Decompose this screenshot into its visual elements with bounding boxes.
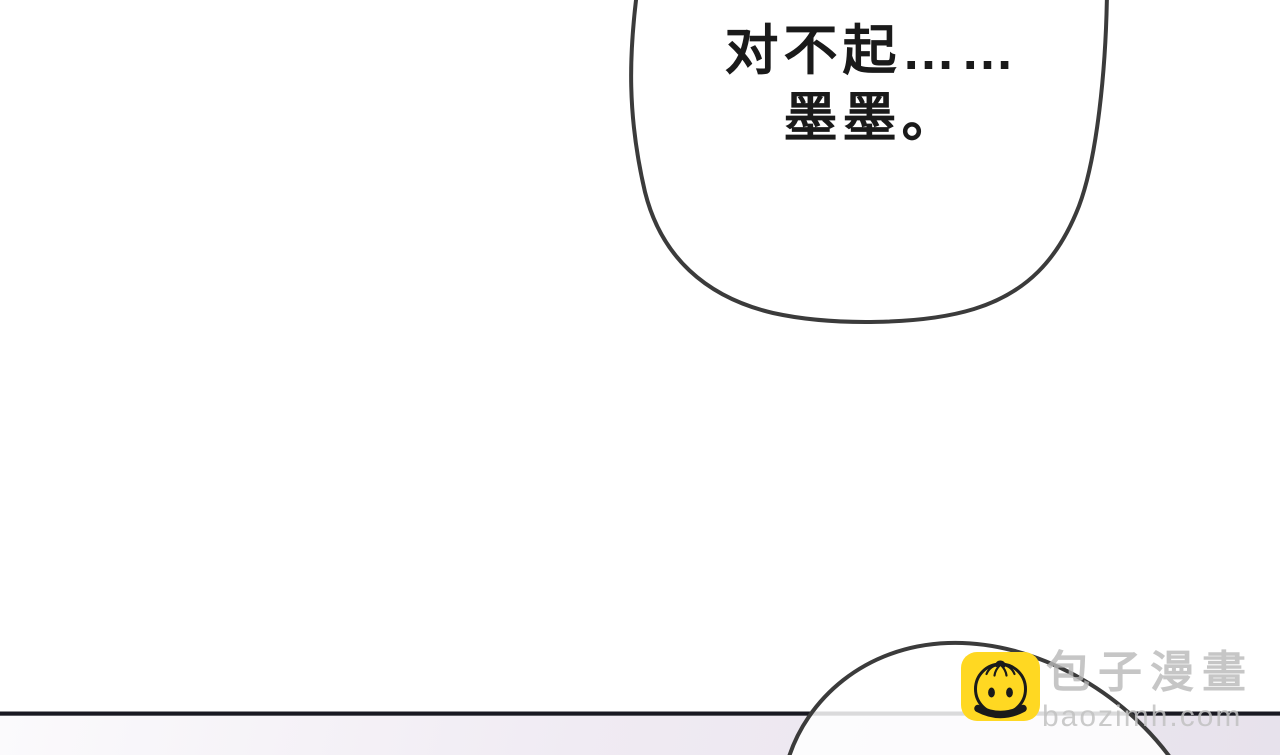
watermark-brand-text: 包子漫畫 (1046, 650, 1254, 696)
watermark-domain-text: baozimh.com (1042, 701, 1242, 733)
dialogue-line-1: 对不起…… (610, 18, 1134, 85)
comic-page: 对不起…… 墨墨。 包子漫畫 baozimh.com (0, 0, 1280, 755)
baozi-bun-icon (961, 652, 1040, 721)
dialogue-line-2: 墨墨。 (610, 85, 1134, 152)
top-bubble-dialogue: 对不起…… 墨墨。 (610, 18, 1134, 152)
